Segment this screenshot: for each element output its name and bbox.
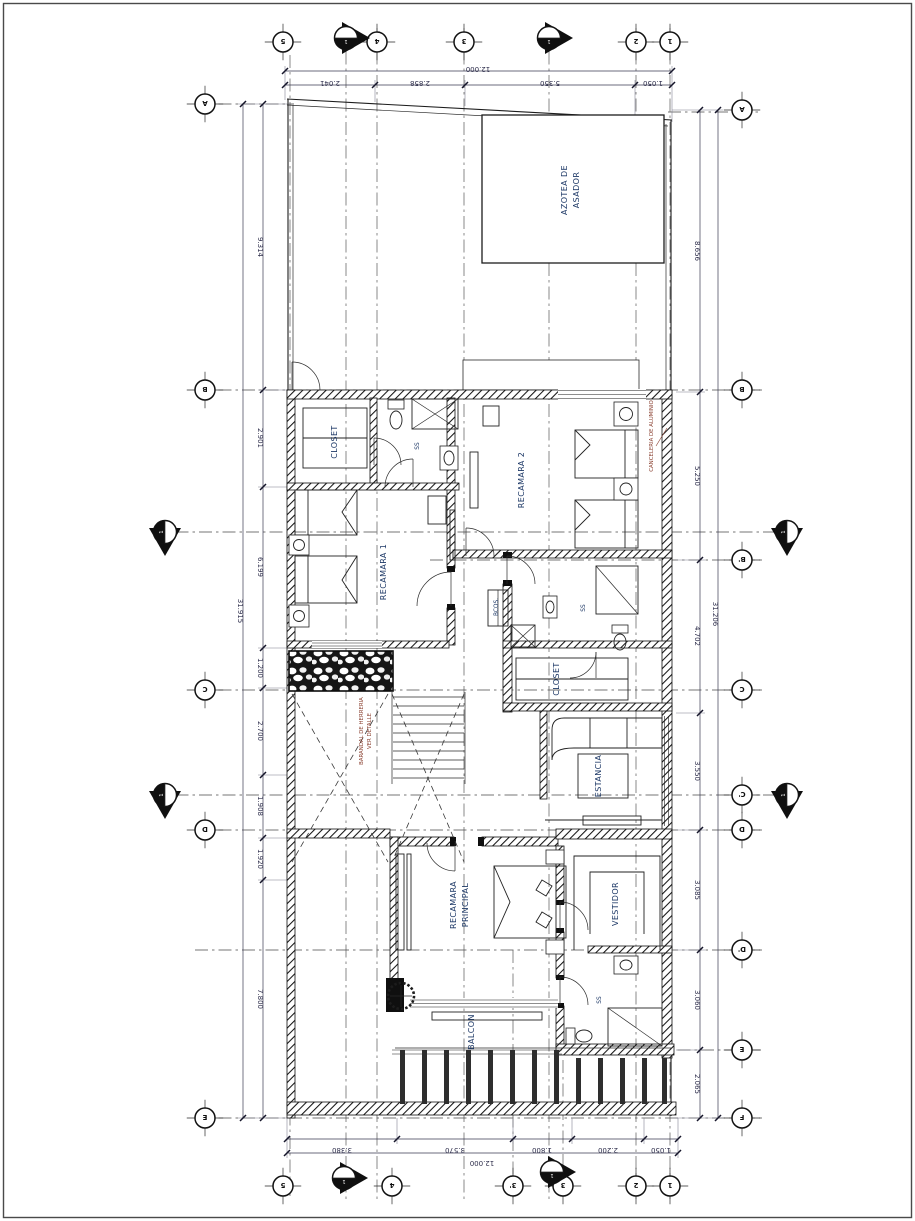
door-jamb	[447, 566, 455, 572]
nightstand	[614, 478, 638, 500]
dim-left-seg1: 9.314	[256, 237, 264, 258]
room-label-azotea-line1: AZOTEA DE	[560, 165, 569, 215]
nightstand	[546, 940, 564, 954]
wall-closet-bottom	[287, 483, 459, 490]
dim-bottom-total: 12.000	[470, 1159, 495, 1167]
dim-left-seg7: 1.920	[256, 849, 264, 869]
room-label-recppal-line1: RECAMARA	[449, 881, 458, 929]
svg-text:D: D	[202, 825, 208, 833]
toilet-tank	[566, 1028, 575, 1044]
dim-top-seg4: 1.050	[643, 79, 663, 87]
louver-slat	[466, 1050, 471, 1104]
dim-bottom-seg3: 1.800	[532, 1146, 552, 1154]
dim-top-seg2: 2.858	[410, 79, 430, 87]
svg-text:1: 1	[159, 530, 165, 533]
wall-bottom-boundary	[287, 1102, 676, 1115]
dim-bottom-seg2: 3.570	[445, 1146, 465, 1154]
dim-left-total: 31.915	[236, 599, 244, 624]
dim-bottom-seg4: 2.200	[598, 1146, 618, 1154]
floor-plan-canvas: 2.041 2.858 5.350 1.050 12.000 3.380 3.5…	[0, 0, 915, 1221]
wall-recamara2-bottom	[453, 550, 672, 558]
svg-text:1: 1	[344, 38, 347, 44]
door-jamb	[478, 837, 484, 846]
svg-text:B': B'	[738, 555, 745, 563]
window-blank	[312, 641, 382, 648]
stone-feature-wall	[289, 651, 393, 691]
dim-top-seg1: 2.041	[320, 79, 340, 87]
sink	[440, 446, 458, 470]
room-label-closet1: CLOSET	[330, 425, 339, 458]
svg-text:C': C'	[738, 790, 745, 798]
svg-text:1: 1	[781, 793, 787, 796]
dim-right-seg3: 4.702	[693, 626, 701, 646]
svg-text:3': 3'	[509, 1181, 516, 1189]
dim-left-seg4: 1.200	[256, 658, 264, 678]
svg-text:C: C	[202, 685, 207, 693]
room-label-balcon: BALCON	[467, 1014, 476, 1050]
svg-text:A: A	[202, 99, 208, 107]
room-label-recppal-line2: PRINCIPAL	[461, 883, 470, 928]
dim-right-seg7: 2.065	[693, 1074, 701, 1094]
dim-right-seg1: 8.656	[693, 241, 701, 262]
svg-text:4: 4	[374, 37, 379, 45]
svg-text:1: 1	[342, 1178, 345, 1184]
svg-text:B: B	[739, 385, 744, 393]
room-label-closet-mid: CLOSET	[552, 662, 561, 695]
wall-estancia-left	[540, 711, 547, 799]
wall-recppal-vestidor-2	[556, 932, 564, 978]
svg-text:D': D'	[738, 945, 746, 953]
svg-text:5: 5	[280, 1181, 285, 1189]
dim-right-seg5: 3.085	[693, 880, 701, 900]
stair-note-line1: BARANDAL DE HERRERIA	[359, 697, 365, 765]
louver-slat	[444, 1050, 449, 1104]
toilet-tank	[388, 400, 404, 409]
roof-ledge	[463, 360, 639, 390]
dim-left-seg8: 7.800	[256, 989, 264, 1009]
svg-text:F: F	[739, 1113, 744, 1121]
room-label-bath-mid: SS	[581, 604, 587, 612]
louver-slat	[598, 1058, 603, 1104]
floor-plan-sheet: 2.041 2.858 5.350 1.050 12.000 3.380 3.5…	[0, 0, 915, 1221]
dim-left-seg5: 2.700	[256, 721, 264, 741]
svg-text:1: 1	[550, 1172, 553, 1178]
sink	[543, 596, 557, 618]
svg-text:5: 5	[280, 37, 285, 45]
louver-slat	[642, 1058, 647, 1104]
louver-slat	[554, 1050, 559, 1104]
louver-slat	[422, 1050, 427, 1104]
nightstand	[546, 850, 564, 864]
dim-left-seg3: 6.199	[256, 557, 264, 577]
wall-r1-divider-stub	[447, 608, 455, 645]
svg-text:3: 3	[461, 37, 466, 45]
svg-text:B: B	[202, 385, 207, 393]
sheet-border	[4, 4, 912, 1218]
svg-text:2: 2	[633, 37, 638, 45]
svg-text:E: E	[739, 1045, 744, 1053]
dim-right-seg6: 3.060	[693, 990, 701, 1010]
svg-text:1: 1	[159, 793, 165, 796]
room-label-recamara2: RECAMARA 2	[517, 452, 526, 508]
louver-slat	[510, 1050, 515, 1104]
svg-text:2: 2	[633, 1181, 638, 1189]
wall-left-exterior	[287, 390, 295, 1118]
room-label-bcos: BCOS.	[494, 598, 500, 616]
dim-top-total: 12.000	[466, 65, 491, 73]
svg-text:1: 1	[547, 38, 550, 44]
wall-right-exterior	[662, 390, 672, 1058]
wall-closet-bath-divider	[370, 398, 377, 490]
room-label-azotea-line2: ASADOR	[572, 172, 581, 209]
nightstand	[289, 605, 309, 627]
louver-slat	[662, 1058, 667, 1104]
room-label-estancia: ESTANCIA	[594, 755, 603, 798]
wall-estancia-bottom	[556, 829, 672, 839]
louver-slat	[576, 1058, 581, 1104]
louver-slat	[400, 1050, 405, 1104]
svg-text:E: E	[202, 1113, 207, 1121]
nightstand	[614, 402, 638, 426]
dim-bottom-seg1: 3.380	[332, 1146, 352, 1154]
stair-note-line2: VER DETALLE	[367, 712, 373, 749]
svg-text:1: 1	[667, 37, 672, 45]
dim-right-total: 31.206	[711, 602, 719, 627]
svg-text:4: 4	[389, 1181, 394, 1189]
svg-text:C: C	[739, 685, 744, 693]
wall-recppal-vestidor-3	[556, 1006, 564, 1048]
svg-text:1: 1	[667, 1181, 672, 1189]
louver-slat	[620, 1058, 625, 1104]
svg-text:D: D	[739, 825, 745, 833]
louver-slat	[532, 1050, 537, 1104]
wall-closet2-bottom	[503, 703, 672, 711]
nightstand	[289, 535, 309, 555]
sink	[614, 956, 638, 974]
dim-top-seg3: 5.350	[540, 79, 560, 87]
wall-vestidor-bath-divider	[588, 946, 672, 953]
window-note: CANCELERIA DE ALUMINIO	[649, 400, 655, 472]
svg-text:3: 3	[560, 1181, 565, 1189]
dim-left-seg2: 2.901	[256, 428, 264, 448]
dim-bottom-seg5: 1.050	[651, 1146, 671, 1154]
dim-left-seg6: 1.908	[256, 796, 264, 816]
door-jamb	[503, 552, 512, 558]
window-blank	[410, 998, 558, 1008]
door-jamb	[503, 580, 512, 586]
room-label-bath-principal: SS	[597, 996, 603, 1004]
room-label-recamara1: RECAMARA 1	[379, 544, 388, 600]
room-label-vestidor: VESTIDOR	[611, 882, 620, 926]
louver-slat	[488, 1050, 493, 1104]
toilet-tank	[612, 625, 628, 633]
dim-right-seg4: 3.550	[693, 761, 701, 781]
wall-void-bottom	[287, 829, 390, 838]
wall-recppal-left	[390, 837, 398, 984]
svg-text:A: A	[739, 105, 745, 113]
svg-text:1: 1	[781, 530, 787, 533]
wall-recppal-top-right	[482, 837, 558, 846]
room-label-bath-top: SS	[415, 442, 421, 450]
dim-right-seg2: 5.250	[693, 466, 701, 486]
